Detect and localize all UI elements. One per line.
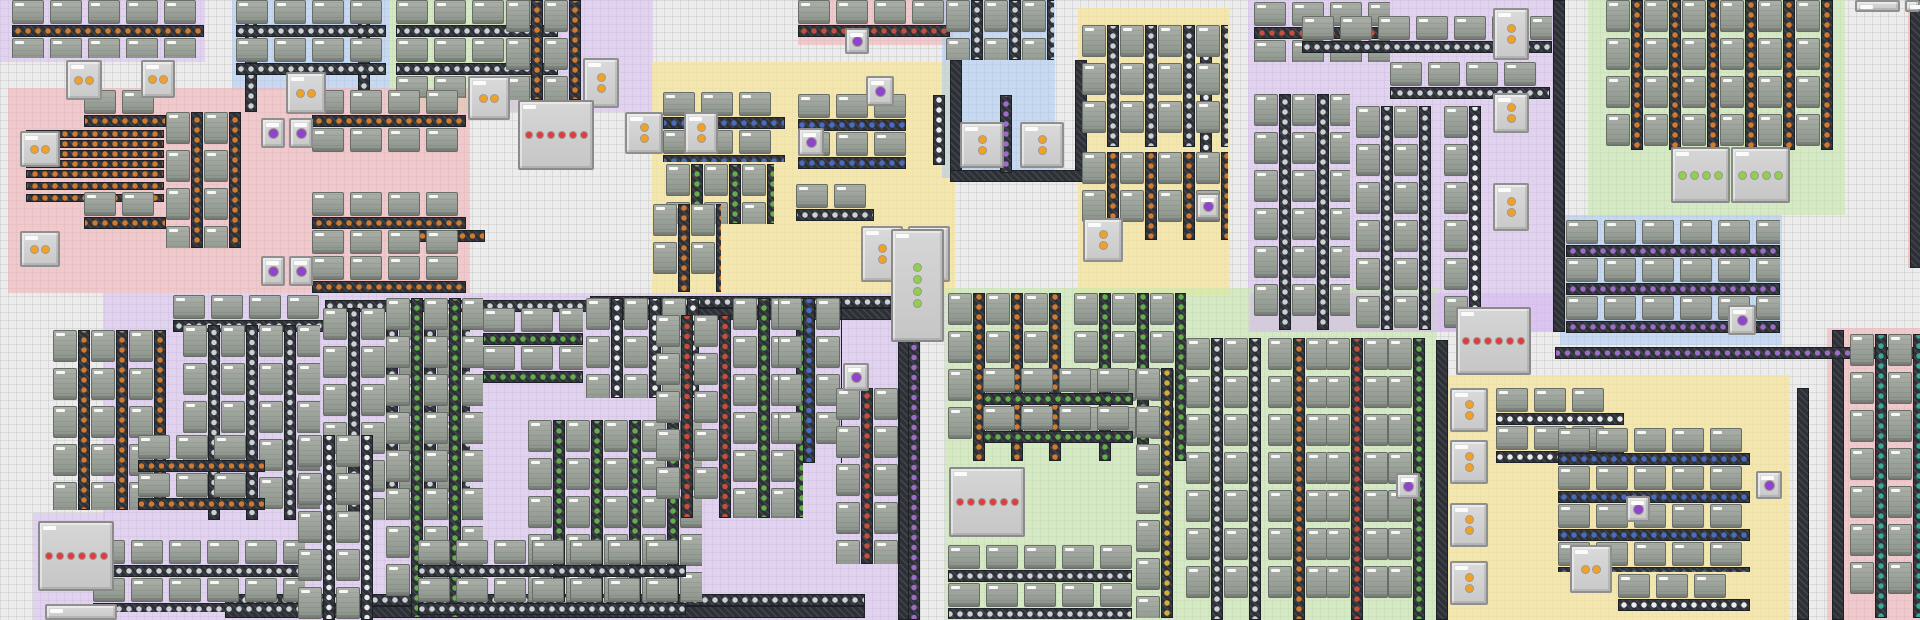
machine[interactable] [1796,38,1820,70]
machine[interactable] [426,192,458,216]
machine[interactable] [986,583,1018,607]
machine[interactable] [1306,528,1326,560]
machine[interactable] [874,464,898,496]
machine[interactable] [1326,414,1350,446]
machine[interactable] [1024,545,1056,569]
machine[interactable] [1720,0,1744,32]
machine[interactable] [166,150,190,182]
machine[interactable] [1416,16,1448,40]
chest-orange[interactable] [66,60,102,100]
storage-box-red[interactable] [949,467,1025,537]
machine[interactable] [298,511,322,543]
machine[interactable] [836,426,860,458]
machine[interactable] [1158,190,1182,222]
conveyor-belt[interactable] [191,112,203,248]
conveyor-belt[interactable] [1145,25,1157,147]
machine[interactable] [388,192,420,216]
chest-orange[interactable] [141,60,175,98]
machine[interactable] [462,412,483,444]
machine[interactable] [169,540,201,564]
machine[interactable] [528,420,552,452]
machine[interactable] [946,0,970,32]
machine[interactable] [1082,152,1106,184]
machine[interactable] [1158,25,1182,57]
machine[interactable] [1356,106,1380,138]
machine[interactable] [521,346,553,370]
machine[interactable] [1850,524,1874,556]
machine[interactable] [1021,406,1053,430]
conveyor-belt[interactable] [1221,25,1228,147]
machine[interactable] [361,308,385,340]
machine[interactable] [1224,452,1248,484]
machine[interactable] [1596,504,1628,528]
machine[interactable] [91,406,115,438]
machine[interactable] [1710,504,1742,528]
machine[interactable] [1112,293,1136,325]
conveyor-belt[interactable] [1183,25,1195,147]
conveyor-belt[interactable] [1317,94,1329,330]
machine[interactable] [1378,16,1410,40]
machine[interactable] [298,549,322,581]
machine[interactable] [694,353,718,385]
machine[interactable] [1196,152,1220,184]
machine[interactable] [1888,334,1912,366]
conveyor-belt[interactable] [1558,453,1750,465]
machine[interactable] [396,0,428,24]
machine[interactable] [1268,414,1292,446]
machine[interactable] [323,384,347,416]
machine[interactable] [1644,38,1668,70]
chest-purple[interactable] [798,128,824,156]
machine[interactable] [874,502,898,534]
machine[interactable] [1796,76,1820,108]
conveyor-belt[interactable] [729,164,741,224]
machine[interactable] [874,132,906,156]
chest-orange[interactable] [1020,122,1064,168]
machine[interactable] [1466,62,1498,86]
machine[interactable] [691,204,715,236]
conveyor-belt[interactable] [1436,340,1448,620]
chest-orange[interactable] [20,131,60,167]
machine[interactable] [350,38,382,62]
machine[interactable] [733,298,757,330]
machine[interactable] [1150,331,1174,363]
machine[interactable] [1888,448,1912,480]
machine[interactable] [1644,0,1668,32]
machine[interactable] [778,336,802,368]
conveyor-belt[interactable] [418,603,686,615]
machine[interactable] [221,363,245,395]
machine[interactable] [986,293,1010,325]
machine[interactable] [733,336,757,368]
machine[interactable] [1224,338,1248,370]
machine[interactable] [1112,331,1136,363]
machine[interactable] [798,0,830,24]
machine[interactable] [361,346,385,378]
machine[interactable] [1454,16,1486,40]
machine[interactable] [1024,583,1056,607]
machine[interactable] [983,406,1015,430]
machine[interactable] [608,578,640,602]
machine[interactable] [12,38,44,58]
machine[interactable] [874,0,906,24]
machine[interactable] [297,325,320,357]
machine[interactable] [1642,258,1674,282]
machine[interactable] [236,0,268,24]
machine[interactable] [1364,338,1388,370]
machine[interactable] [566,496,590,528]
machine[interactable] [1268,566,1292,598]
machine[interactable] [1024,293,1048,325]
conveyor-belt[interactable] [84,115,166,127]
chest[interactable] [1855,0,1900,12]
machine[interactable] [1120,152,1144,184]
machine[interactable] [1302,16,1334,40]
chest-purple[interactable] [845,28,869,54]
machine[interactable] [570,540,602,564]
machine[interactable] [1268,452,1292,484]
machine[interactable] [297,401,320,433]
machine[interactable] [483,346,515,370]
machine[interactable] [1136,558,1160,590]
machine[interactable] [122,192,154,216]
conveyor-belt[interactable] [1496,413,1624,425]
machine[interactable] [462,336,483,368]
conveyor-belt[interactable] [933,95,945,165]
machine[interactable] [259,325,283,357]
conveyor-belt[interactable] [950,170,1087,182]
machine[interactable] [1694,574,1726,598]
machine[interactable] [816,298,840,330]
machine[interactable] [164,0,196,24]
machine[interactable] [1136,406,1160,438]
machine[interactable] [1888,410,1912,442]
machine[interactable] [1306,376,1326,408]
machine[interactable] [1186,452,1210,484]
machine[interactable] [1758,38,1782,70]
machine[interactable] [424,336,448,368]
machine[interactable] [386,336,410,368]
machine[interactable] [183,325,207,357]
machine[interactable] [169,578,201,602]
conveyor-belt[interactable] [948,608,1132,619]
machine[interactable] [204,226,228,248]
machine[interactable] [1850,410,1874,442]
conveyor-belt[interactable] [361,435,373,620]
machine[interactable] [1186,376,1210,408]
machine[interactable] [1558,466,1590,490]
machine[interactable] [912,0,944,24]
machine[interactable] [1364,528,1388,560]
machine[interactable] [771,488,795,518]
machine[interactable] [742,202,766,224]
machine[interactable] [1850,448,1874,480]
machine[interactable] [656,467,680,499]
machine[interactable] [544,0,568,32]
chest-purple[interactable] [289,256,313,286]
machine[interactable] [426,256,458,280]
machine[interactable] [424,412,448,444]
machine[interactable] [166,112,190,144]
machine[interactable] [796,184,828,208]
machine[interactable] [424,450,448,482]
machine[interactable] [1186,338,1210,370]
machine[interactable] [53,368,77,400]
machine[interactable] [646,540,678,564]
machine[interactable] [1720,114,1744,146]
machine[interactable] [396,38,428,62]
machine[interactable] [1340,16,1372,40]
machine[interactable] [1330,132,1350,164]
machine[interactable] [1672,428,1704,452]
machine[interactable] [653,204,677,236]
machine[interactable] [1292,246,1316,278]
machine[interactable] [666,164,690,196]
machine[interactable] [1136,520,1160,552]
machine[interactable] [1330,246,1350,278]
machine[interactable] [1330,208,1350,240]
machine[interactable] [1604,220,1636,244]
machine[interactable] [1604,296,1636,320]
machine[interactable] [586,298,610,330]
conveyor-belt[interactable] [312,217,466,229]
machine[interactable] [456,578,488,602]
machine[interactable] [350,192,382,216]
machine[interactable] [221,325,245,357]
conveyor-belt[interactable] [983,431,1133,443]
machine[interactable] [1120,101,1144,133]
machine[interactable] [1330,94,1350,126]
machine[interactable] [604,496,628,528]
conveyor-belt[interactable] [1351,338,1363,620]
chest-orange[interactable] [286,72,326,114]
machine[interactable] [1572,388,1604,412]
machine[interactable] [694,467,718,499]
conveyor-belt[interactable] [861,388,873,564]
chest-orange[interactable] [1450,440,1488,484]
machine[interactable] [1394,182,1418,214]
machine[interactable] [1356,182,1380,214]
chest-purple[interactable] [1756,471,1782,499]
chest-orange[interactable] [960,122,1004,168]
machine[interactable] [1888,562,1912,594]
machine[interactable] [1120,25,1144,57]
machine[interactable] [1428,62,1460,86]
machine[interactable] [126,0,158,24]
machine[interactable] [88,0,120,24]
machine[interactable] [1120,190,1144,222]
chest-orange[interactable] [1493,93,1529,133]
machine[interactable] [1224,414,1248,446]
machine[interactable] [1022,38,1046,60]
machine[interactable] [386,450,410,482]
machine[interactable] [1644,76,1668,108]
conveyor-belt[interactable] [1566,245,1780,257]
conveyor-belt[interactable] [26,170,164,178]
machine[interactable] [298,473,322,505]
machine[interactable] [1082,101,1106,133]
machine[interactable] [274,0,306,24]
machine[interactable] [456,540,488,564]
conveyor-belt[interactable] [1107,25,1119,147]
machine[interactable] [1059,406,1091,430]
machine[interactable] [418,578,450,602]
machine[interactable] [566,420,590,452]
machine[interactable] [656,391,680,423]
chest-purple[interactable] [843,363,869,391]
machine[interactable] [1356,144,1380,176]
machine[interactable] [1059,368,1091,392]
machine[interactable] [1062,545,1094,569]
machine[interactable] [836,502,860,534]
machine[interactable] [874,540,898,564]
conveyor-belt[interactable] [312,115,466,127]
machine[interactable] [608,540,640,564]
chest-purple[interactable] [1626,496,1650,522]
machine[interactable] [53,482,77,510]
conveyor-belt[interactable] [767,164,774,224]
machine[interactable] [1606,114,1630,146]
machine[interactable] [1606,38,1630,70]
machine[interactable] [653,242,677,274]
machine[interactable] [778,412,802,444]
machine[interactable] [1022,0,1046,32]
machine[interactable] [1254,132,1278,164]
machine[interactable] [1306,490,1326,522]
machine[interactable] [1672,504,1704,528]
machine[interactable] [836,0,868,24]
chest-orange[interactable] [1450,561,1488,605]
machine[interactable] [1394,144,1418,176]
machine[interactable] [1224,528,1248,560]
conveyor-belt[interactable] [1875,334,1887,618]
chest-orange[interactable] [1570,545,1612,593]
machine[interactable] [1642,296,1674,320]
machine[interactable] [733,488,757,518]
machine[interactable] [1496,426,1528,450]
machine[interactable] [388,128,420,152]
machine[interactable] [53,330,77,362]
machine[interactable] [1644,114,1668,146]
machine[interactable] [1634,428,1666,452]
conveyor-belt[interactable] [1381,106,1393,330]
machine[interactable] [948,407,972,439]
machine[interactable] [694,315,718,347]
machine[interactable] [236,38,268,62]
machine[interactable] [131,540,163,564]
conveyor-belt[interactable] [1469,106,1481,330]
machine[interactable] [1254,284,1278,316]
machine[interactable] [434,0,466,24]
machine[interactable] [1680,220,1712,244]
machine[interactable] [131,578,163,602]
machine[interactable] [1444,144,1468,176]
machine[interactable] [1710,428,1742,452]
machine[interactable] [350,0,382,24]
chest-purple[interactable] [866,76,894,106]
machine[interactable] [424,374,448,406]
machine[interactable] [183,363,207,395]
machine[interactable] [84,192,116,216]
conveyor-belt[interactable] [971,0,983,60]
storage-box-green[interactable] [891,229,944,342]
machine[interactable] [570,578,602,602]
machine[interactable] [207,578,239,602]
machine[interactable] [1394,296,1418,328]
machine[interactable] [874,388,898,420]
machine[interactable] [1530,16,1552,40]
machine[interactable] [733,450,757,482]
machine[interactable] [1566,258,1598,282]
conveyor-belt[interactable] [1047,0,1054,60]
machine[interactable] [312,128,344,152]
machine[interactable] [1074,331,1098,363]
machine[interactable] [1224,566,1248,598]
machine[interactable] [1097,368,1129,392]
conveyor-belt[interactable] [1558,491,1750,503]
machine[interactable] [1326,566,1350,598]
machine[interactable] [1850,486,1874,518]
conveyor-belt[interactable] [12,25,204,37]
conveyor-belt[interactable] [229,112,241,248]
machine[interactable] [1158,152,1182,184]
storage-box-red[interactable] [518,100,594,170]
machine[interactable] [1618,574,1650,598]
machine[interactable] [816,336,840,368]
machine[interactable] [1682,76,1706,108]
machine[interactable] [1566,220,1598,244]
machine[interactable] [1254,246,1278,278]
machine[interactable] [129,330,153,362]
machine[interactable] [386,488,410,520]
machine[interactable] [986,331,1010,363]
storage-box-green[interactable] [1731,147,1790,203]
machine[interactable] [298,587,322,619]
machine[interactable] [874,426,898,458]
machine[interactable] [528,496,552,528]
machine[interactable] [1394,220,1418,252]
machine[interactable] [1024,331,1048,363]
conveyor-belt[interactable] [26,182,164,190]
machine[interactable] [704,164,728,196]
machine[interactable] [1224,376,1248,408]
machine[interactable] [1292,208,1316,240]
machine[interactable] [836,388,860,420]
machine[interactable] [1596,466,1628,490]
conveyor-belt[interactable] [312,281,466,293]
machine[interactable] [948,369,972,401]
machine[interactable] [1558,428,1590,452]
machine[interactable] [176,473,208,497]
machine[interactable] [733,374,757,406]
storage-box-red[interactable] [1456,307,1531,375]
machine[interactable] [129,406,153,438]
machine[interactable] [336,511,360,543]
machine[interactable] [1136,482,1160,514]
machine[interactable] [1850,562,1874,594]
machine[interactable] [312,38,344,62]
machine[interactable] [323,308,347,340]
machine[interactable] [129,368,153,400]
machine[interactable] [297,363,320,395]
chest[interactable] [45,604,117,620]
machine[interactable] [604,458,628,490]
machine[interactable] [53,444,77,476]
machine[interactable] [834,184,866,208]
machine[interactable] [494,540,526,564]
machine[interactable] [1720,38,1744,70]
machine[interactable] [624,298,648,330]
